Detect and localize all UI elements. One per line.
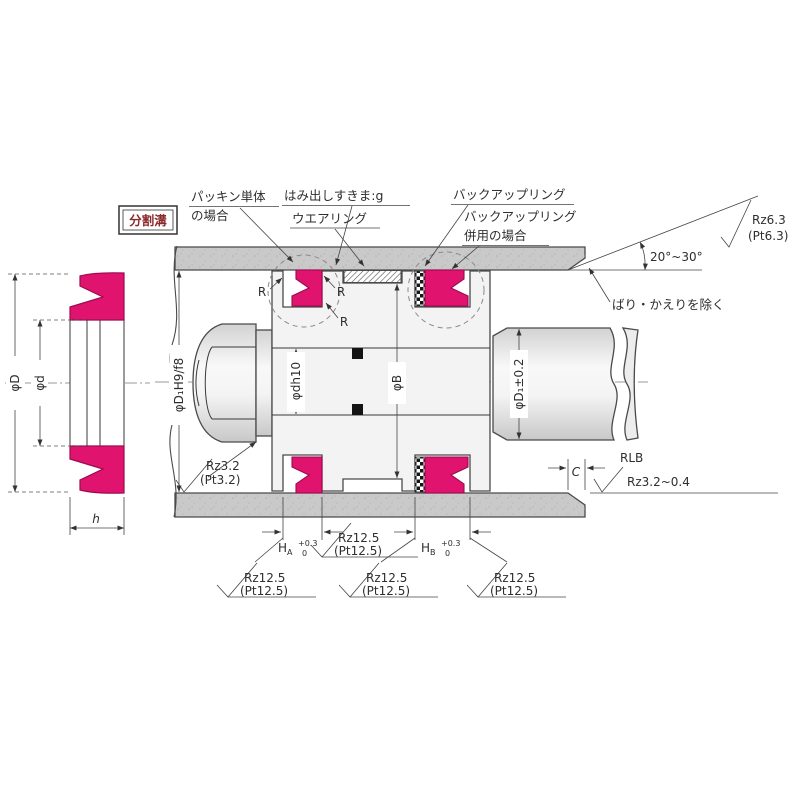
- rz125-label: Rz12.5: [244, 571, 285, 585]
- oring-section-top: [352, 348, 363, 359]
- wear-ring: [344, 271, 401, 283]
- pt63-label: (Pt6.3): [748, 229, 788, 243]
- groove-roughness-labels: Rz12.5 (Pt12.5) Rz12.5 (Pt12.5) Rz12.5 (…: [217, 523, 566, 598]
- pt125-label: (Pt12.5): [490, 584, 538, 598]
- rz125-label: Rz12.5: [494, 571, 535, 585]
- dim-hb-tol-plus: +0.3: [441, 539, 460, 548]
- rz125-callout-bottom-right: Rz12.5 (Pt12.5): [467, 563, 566, 598]
- radius-label-2: R: [337, 285, 345, 299]
- backup-ring-label: バックアップリング: [453, 187, 566, 202]
- rz63-label: Rz6.3: [752, 213, 786, 227]
- split-groove-label: 分割溝: [129, 213, 167, 228]
- pilot-roughness-callout: Rz3.2 (Pt3.2): [176, 442, 256, 492]
- dome-nut: [193, 324, 256, 442]
- pt125-label: (Pt12.5): [362, 584, 410, 598]
- dim-ha: HA: [278, 541, 293, 557]
- leader-deburr: [589, 268, 610, 302]
- cylinder-wall-upper-texture: [175, 247, 585, 270]
- dim-hb: HB: [421, 541, 436, 557]
- dim-phiD: φD: [8, 374, 22, 391]
- dim-ha-tol-plus: +0.3: [298, 539, 317, 548]
- rlb-roughness-value: Rz3.2~0.4: [627, 475, 690, 489]
- deburr-label: ばり・かえりを除く: [612, 297, 725, 312]
- rlb-label: RLB: [620, 451, 643, 465]
- rz125-callout-upper: Rz12.5 (Pt12.5): [311, 523, 418, 558]
- dim-h: h: [92, 512, 100, 526]
- backup-ring-bottom: [415, 457, 425, 492]
- protrusion-gap-label: はみ出しすきま:g: [284, 188, 383, 203]
- pt125-label: (Pt12.5): [240, 584, 288, 598]
- roughness-symbol-rlb: [594, 467, 623, 492]
- seal-body-midsection: [70, 320, 124, 446]
- cylinder-wall-lower-texture: [175, 493, 585, 517]
- packing-bottom-right: [425, 457, 468, 493]
- split-groove-box: 分割溝: [119, 206, 177, 234]
- wear-ring-label: ウエアリング: [292, 211, 367, 226]
- radius-label-1: R: [258, 285, 266, 299]
- rz125-callout-bottom-left: Rz12.5 (Pt12.5): [217, 563, 316, 598]
- packing-top-left: [292, 270, 322, 306]
- dim-phiD1-tol: φD₁±0.2: [512, 358, 526, 409]
- packing-single-label-1: パッキン単体: [191, 189, 266, 204]
- backup-combined-label-1: バックアップリング: [464, 209, 577, 224]
- dim-phiB: φB: [390, 375, 404, 391]
- pt125-label: (Pt12.5): [334, 544, 382, 558]
- dim-phidh10: φdh10: [289, 362, 303, 400]
- rod-break-stub: [623, 328, 638, 440]
- pt32-label: (Pt3.2): [200, 473, 240, 487]
- drawing-page: φD φd h: [0, 0, 800, 800]
- roughness-symbol-rz63: [721, 200, 751, 247]
- seal-ring-side-view: φD φd h: [5, 273, 150, 535]
- chamfer-angle-label: 20°~30°: [650, 250, 703, 264]
- backup-ring-top: [415, 271, 425, 306]
- packing-single-label-2: の場合: [191, 208, 229, 223]
- radius-label-3: R: [340, 315, 348, 329]
- chamfer-callouts: 20°~30° Rz6.3 (Pt6.3) ばり・かえりを除く: [568, 196, 788, 312]
- backup-combined-label-2: 併用の場合: [464, 228, 527, 243]
- seal-lower-lip-section: [70, 446, 124, 493]
- rz125-label: Rz12.5: [366, 571, 407, 585]
- seal-upper-lip-section: [70, 273, 124, 320]
- seal-installation-diagram: φD φd h: [0, 0, 800, 800]
- washer: [256, 330, 272, 436]
- dim-phid: φd: [33, 375, 47, 391]
- packing-top-right: [425, 270, 468, 306]
- rz125-callout-bottom-middle: Rz12.5 (Pt12.5): [339, 563, 438, 598]
- dim-ha-tol-zero: 0: [302, 549, 307, 558]
- dim-c: C: [572, 465, 581, 479]
- packing-bottom-left: [292, 457, 322, 493]
- bore-roughness-callout: RLB Rz3.2~0.4 C: [548, 451, 778, 493]
- dim-hb-tol-zero: 0: [445, 549, 450, 558]
- oring-section-bottom: [352, 404, 363, 415]
- dim-phiD1-fit: φD₁H9/f8: [172, 358, 186, 413]
- rz125-label: Rz12.5: [338, 531, 379, 545]
- leader-rz125-mid: [381, 538, 415, 562]
- leader-rz125-right: [470, 538, 507, 562]
- angle-arc: [640, 242, 645, 270]
